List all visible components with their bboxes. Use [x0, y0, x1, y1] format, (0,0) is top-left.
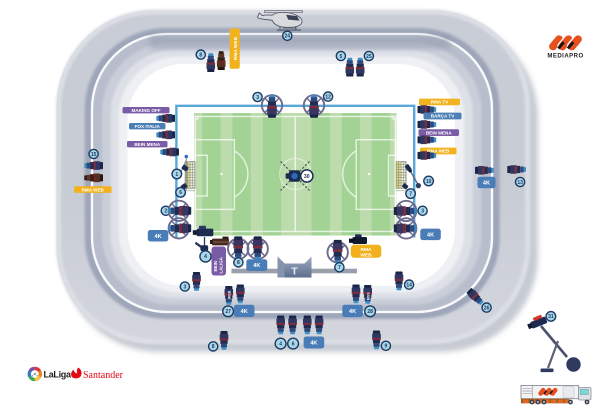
svg-text:4: 4 [204, 254, 207, 260]
svg-text:4K: 4K [349, 309, 356, 315]
svg-text:MEDIAPRO: MEDIAPRO [547, 54, 583, 60]
svg-text:3: 3 [256, 95, 259, 101]
svg-text:4K: 4K [154, 234, 161, 240]
svg-text:6: 6 [179, 190, 182, 196]
svg-text:30: 30 [304, 174, 310, 180]
svg-text:14: 14 [406, 282, 412, 288]
svg-text:BEIN MENA: BEIN MENA [134, 142, 160, 147]
svg-text:8: 8 [199, 52, 202, 58]
svg-text:4K: 4K [253, 263, 260, 269]
svg-text:25: 25 [366, 54, 372, 60]
svg-text:T: T [291, 266, 298, 278]
svg-text:RMA: RMA [361, 247, 372, 253]
svg-text:10: 10 [426, 179, 432, 185]
svg-text:13: 13 [517, 180, 523, 186]
svg-text:4K: 4K [310, 341, 317, 347]
svg-text:BEIN: BEIN [213, 261, 218, 272]
svg-text:27: 27 [225, 309, 231, 315]
svg-text:3: 3 [184, 284, 187, 290]
svg-text:FOX ITALIA: FOX ITALIA [135, 124, 161, 129]
svg-text:3: 3 [421, 209, 424, 215]
svg-text:MAKING OFF: MAKING OFF [131, 108, 160, 113]
svg-text:BARÇA TV: BARÇA TV [431, 114, 455, 119]
svg-text:RMA TV: RMA TV [431, 100, 449, 105]
svg-text:LALIGA: LALIGA [219, 256, 224, 273]
svg-text:24: 24 [285, 34, 291, 40]
svg-text:MSS: MSS [367, 292, 371, 300]
svg-text:WEB: WEB [360, 253, 372, 259]
svg-text:7: 7 [338, 265, 341, 271]
svg-text:BEIN MENA: BEIN MENA [426, 130, 452, 135]
svg-text:5: 5 [340, 54, 343, 60]
svg-text:12: 12 [325, 94, 331, 100]
svg-text:15: 15 [91, 152, 97, 158]
svg-text:RMA WEB: RMA WEB [233, 36, 239, 60]
svg-text:4K: 4K [241, 309, 248, 315]
svg-text:2: 2 [164, 209, 167, 215]
svg-text:Santander: Santander [83, 370, 124, 381]
svg-text:4K: 4K [483, 181, 490, 187]
svg-text:4: 4 [279, 341, 282, 347]
svg-text:26: 26 [484, 305, 490, 311]
svg-text:8: 8 [237, 260, 240, 266]
svg-text:31: 31 [548, 314, 554, 320]
svg-text:4K: 4K [427, 232, 434, 238]
svg-text:8: 8 [212, 344, 215, 350]
svg-text:28: 28 [367, 309, 373, 315]
svg-text:6: 6 [292, 341, 295, 347]
svg-text:9: 9 [385, 344, 388, 350]
svg-text:LaLiga: LaLiga [44, 370, 72, 380]
svg-text:7: 7 [409, 191, 412, 197]
svg-text:RMA WEB: RMA WEB [82, 187, 105, 192]
svg-text:1: 1 [175, 172, 178, 178]
svg-text:WEB: WEB [228, 290, 232, 299]
